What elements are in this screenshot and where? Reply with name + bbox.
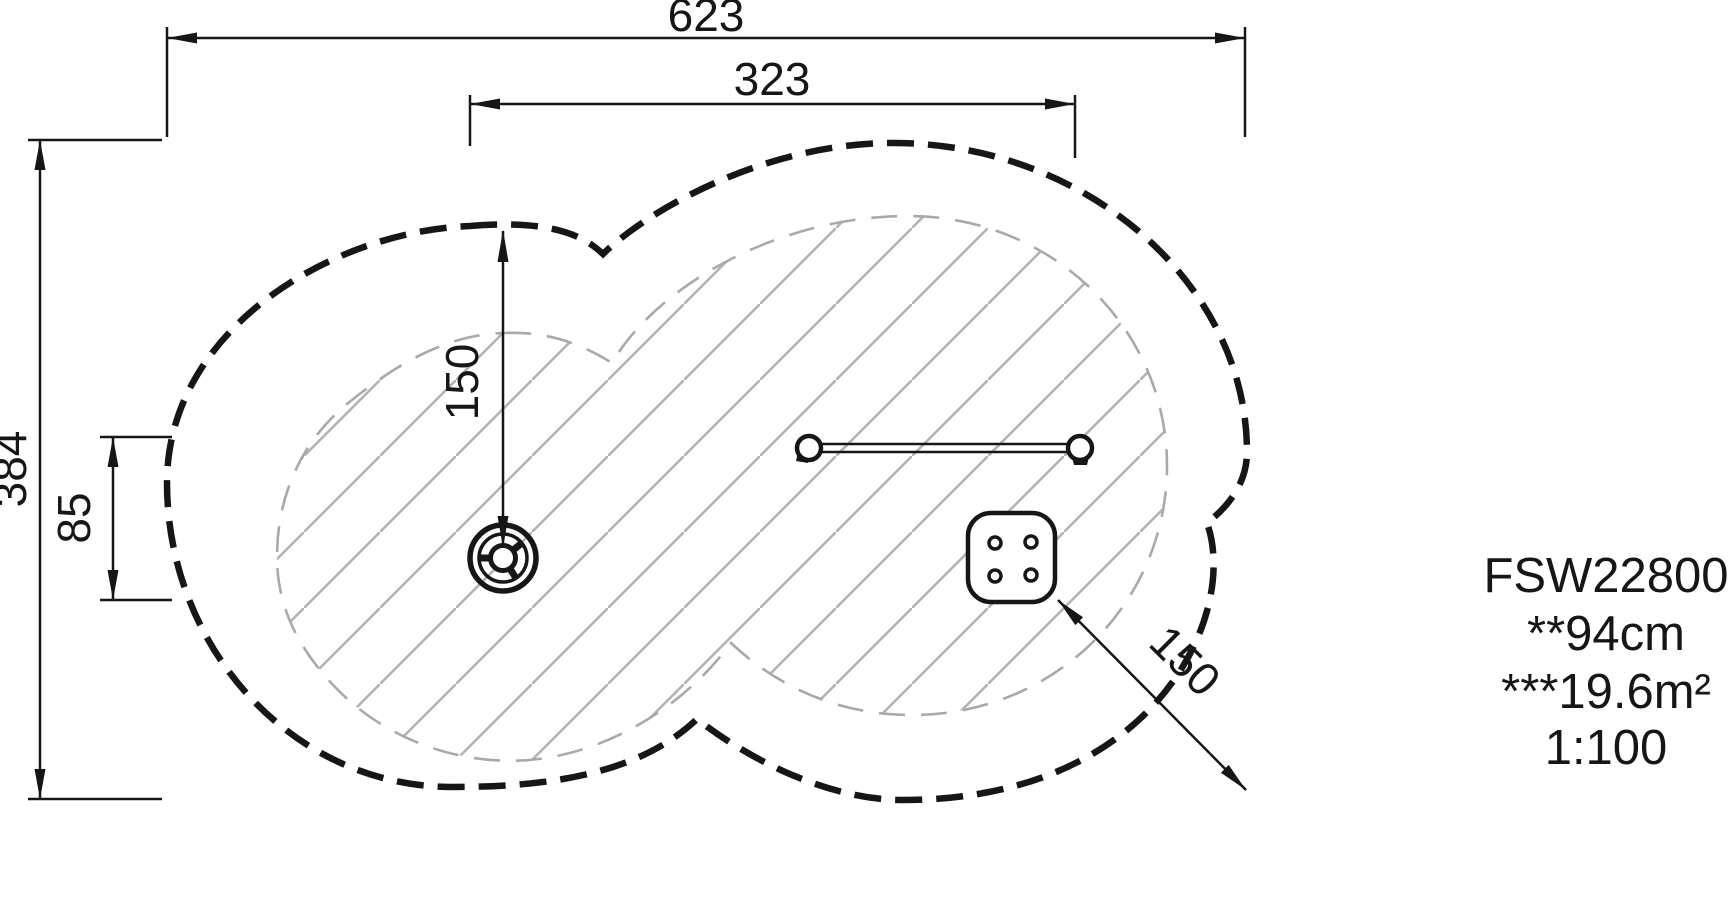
dimension-label-inner-width: 323	[734, 53, 811, 105]
dimension-label-total-height: 384	[0, 431, 36, 508]
safety-zone-plan-drawing: 623 323 384 85	[0, 0, 1730, 897]
drawing-scale-label: 1:100	[1545, 721, 1668, 775]
spring-platform-icon	[968, 513, 1055, 602]
dimension-total-width: 623	[167, 0, 1245, 137]
safety-area-label: ***19.6m²	[1501, 665, 1711, 719]
fall-height-label: **94cm	[1527, 607, 1685, 661]
dimension-left-offset: 85	[48, 437, 172, 600]
product-code-label: FSW22800	[1483, 549, 1728, 603]
title-block: FSW22800 **94cm ***19.6m² 1:100	[1483, 549, 1728, 775]
dimension-label-clearance-diagonal: 150	[1140, 615, 1231, 706]
dimension-clearance-diagonal: 150	[1058, 600, 1246, 790]
technical-drawing-page: 623 323 384 85	[0, 0, 1730, 897]
dimension-label-clearance-vertical: 150	[436, 344, 488, 421]
dimension-label-total-width: 623	[668, 0, 745, 41]
dimension-inner-width: 323	[470, 53, 1075, 158]
dimension-total-height: 384	[0, 140, 162, 799]
dimension-label-left-offset: 85	[48, 492, 100, 543]
